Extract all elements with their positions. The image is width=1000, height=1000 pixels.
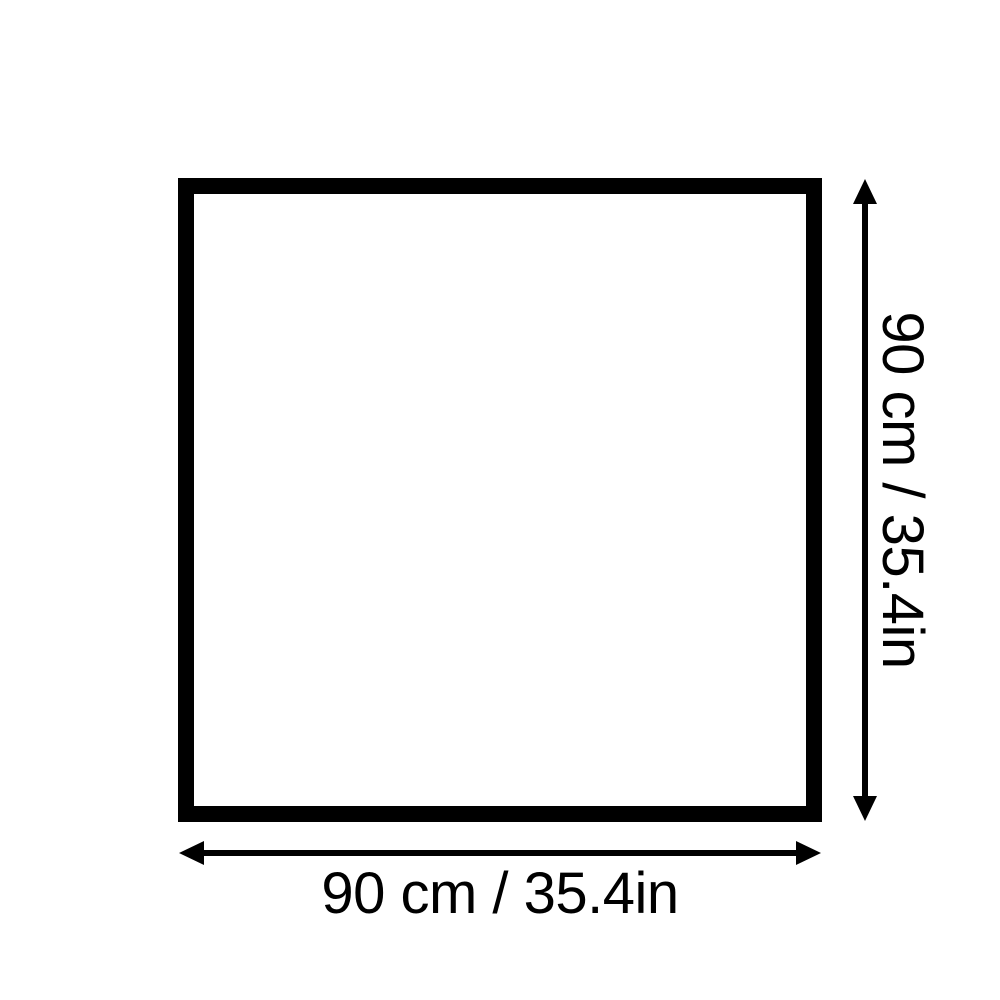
dimension-diagram: 90 cm / 35.4in 90 cm / 35.4in bbox=[0, 0, 1000, 1000]
height-dimension-label: 90 cm / 35.4in bbox=[872, 168, 932, 812]
product-outline-square bbox=[178, 178, 822, 822]
width-dimension-label: 90 cm / 35.4in bbox=[178, 864, 822, 924]
